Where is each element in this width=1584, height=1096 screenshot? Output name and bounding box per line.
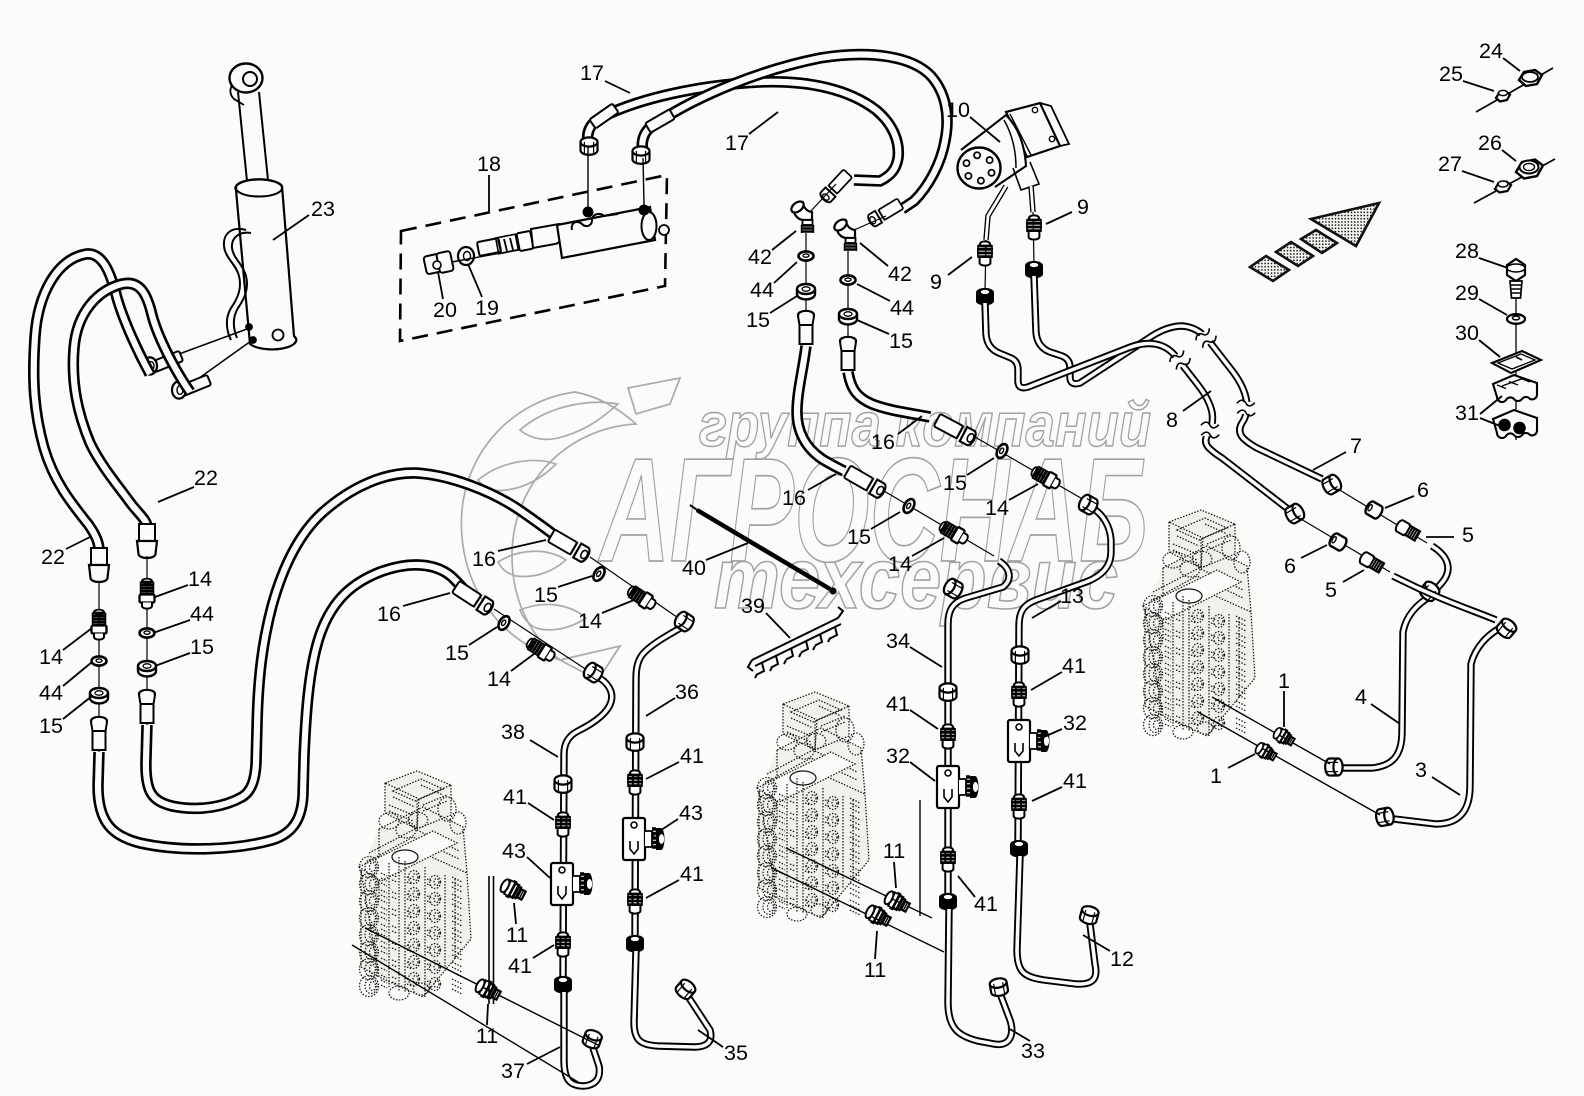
svg-text:39: 39: [741, 594, 765, 618]
svg-text:44: 44: [190, 602, 214, 626]
svg-text:20: 20: [433, 298, 457, 322]
svg-text:22: 22: [41, 545, 65, 569]
svg-text:41: 41: [680, 862, 704, 886]
svg-text:32: 32: [886, 744, 910, 768]
svg-text:23: 23: [311, 197, 335, 221]
svg-text:15: 15: [847, 525, 871, 549]
svg-text:42: 42: [888, 262, 912, 286]
svg-text:37: 37: [501, 1059, 525, 1083]
svg-text:10: 10: [946, 98, 970, 122]
svg-text:41: 41: [1062, 654, 1086, 678]
svg-text:31: 31: [1455, 401, 1479, 425]
svg-text:6: 6: [1284, 554, 1296, 578]
svg-text:41: 41: [886, 692, 910, 716]
svg-text:43: 43: [502, 839, 526, 863]
svg-text:6: 6: [1417, 478, 1429, 502]
svg-text:33: 33: [1021, 1039, 1045, 1063]
svg-text:43: 43: [679, 801, 703, 825]
svg-text:техсервис: техсервис: [714, 531, 1118, 627]
svg-text:15: 15: [445, 641, 469, 665]
svg-text:15: 15: [190, 635, 214, 659]
svg-text:14: 14: [985, 496, 1009, 520]
svg-text:16: 16: [871, 430, 895, 454]
svg-text:15: 15: [534, 583, 558, 607]
svg-text:28: 28: [1455, 239, 1479, 263]
svg-text:12: 12: [1110, 947, 1134, 971]
svg-text:44: 44: [39, 681, 63, 705]
svg-text:14: 14: [888, 552, 912, 576]
svg-text:42: 42: [748, 245, 772, 269]
svg-text:18: 18: [477, 152, 501, 176]
svg-text:41: 41: [1063, 769, 1087, 793]
svg-text:32: 32: [1063, 711, 1087, 735]
svg-text:1: 1: [1278, 669, 1290, 693]
svg-text:16: 16: [377, 602, 401, 626]
svg-text:8: 8: [1166, 408, 1178, 432]
svg-text:4: 4: [1355, 685, 1367, 709]
svg-text:16: 16: [472, 547, 496, 571]
svg-text:41: 41: [508, 954, 532, 978]
svg-text:14: 14: [487, 667, 511, 691]
svg-text:41: 41: [503, 785, 527, 809]
svg-text:36: 36: [675, 680, 699, 704]
svg-text:44: 44: [890, 296, 914, 320]
svg-text:38: 38: [501, 720, 525, 744]
svg-text:25: 25: [1439, 62, 1463, 86]
svg-text:41: 41: [974, 892, 998, 916]
svg-text:1: 1: [1210, 764, 1222, 788]
svg-text:9: 9: [1077, 195, 1089, 219]
svg-text:30: 30: [1455, 321, 1479, 345]
svg-text:26: 26: [1478, 131, 1502, 155]
svg-text:24: 24: [1479, 39, 1503, 63]
svg-text:15: 15: [746, 308, 770, 332]
svg-text:19: 19: [475, 296, 499, 320]
svg-text:5: 5: [1325, 578, 1337, 602]
svg-text:16: 16: [782, 486, 806, 510]
svg-text:15: 15: [39, 714, 63, 738]
svg-text:11: 11: [476, 1024, 498, 1048]
svg-text:15: 15: [889, 329, 913, 353]
svg-text:11: 11: [883, 839, 905, 863]
svg-text:11: 11: [864, 958, 886, 982]
svg-text:13: 13: [1060, 584, 1084, 608]
svg-text:29: 29: [1455, 281, 1479, 305]
svg-text:9: 9: [930, 270, 942, 294]
svg-text:5: 5: [1462, 523, 1474, 547]
svg-text:14: 14: [188, 567, 212, 591]
svg-text:17: 17: [725, 131, 749, 155]
svg-text:11: 11: [506, 923, 528, 947]
svg-text:41: 41: [680, 744, 704, 768]
svg-text:35: 35: [724, 1041, 748, 1065]
svg-text:34: 34: [886, 629, 910, 653]
svg-text:27: 27: [1438, 152, 1462, 176]
svg-text:44: 44: [750, 278, 774, 302]
svg-text:14: 14: [578, 609, 602, 633]
svg-text:3: 3: [1415, 758, 1427, 782]
svg-text:14: 14: [39, 645, 63, 669]
svg-text:22: 22: [194, 466, 218, 490]
svg-text:40: 40: [682, 556, 706, 580]
svg-text:15: 15: [943, 471, 967, 495]
svg-text:7: 7: [1350, 434, 1362, 458]
svg-text:17: 17: [580, 61, 604, 85]
